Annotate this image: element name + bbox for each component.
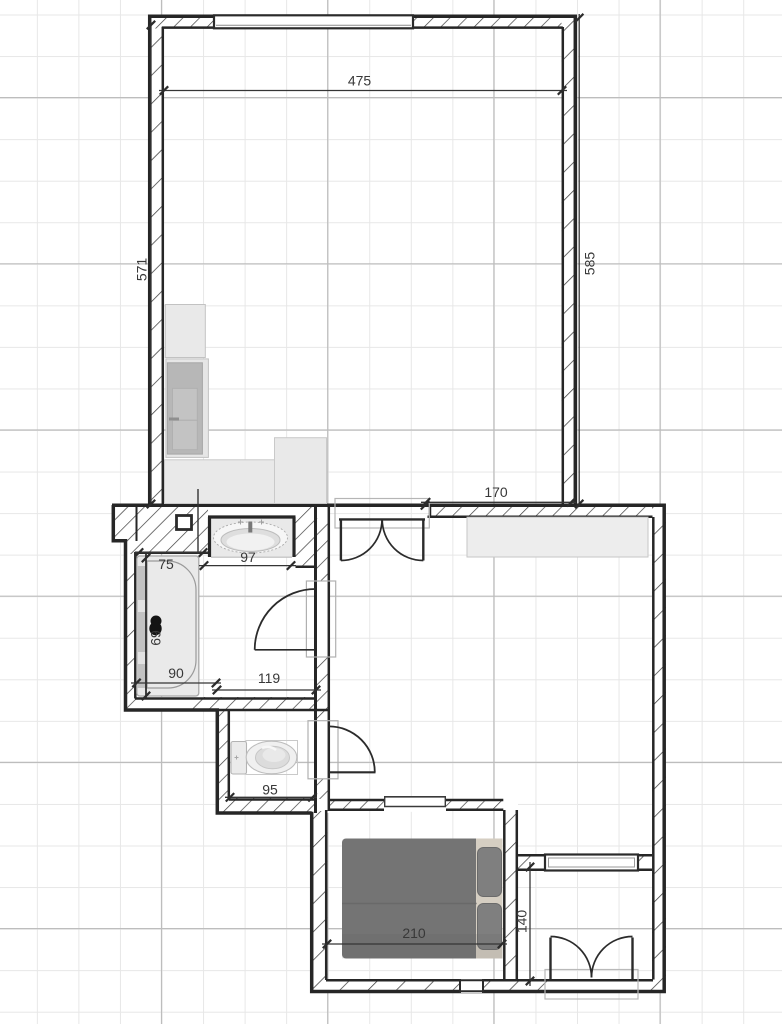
svg-text:95: 95 — [262, 782, 278, 798]
svg-text:210: 210 — [402, 925, 426, 941]
svg-text:69: 69 — [148, 630, 164, 646]
svg-text:97: 97 — [240, 549, 256, 565]
svg-text:140: 140 — [514, 910, 530, 934]
svg-text:170: 170 — [484, 484, 508, 500]
svg-text:75: 75 — [158, 556, 174, 572]
svg-text:571: 571 — [133, 258, 149, 282]
svg-text:90: 90 — [168, 665, 184, 681]
svg-text:585: 585 — [582, 252, 598, 276]
svg-text:119: 119 — [258, 670, 281, 686]
svg-text:475: 475 — [348, 73, 372, 89]
